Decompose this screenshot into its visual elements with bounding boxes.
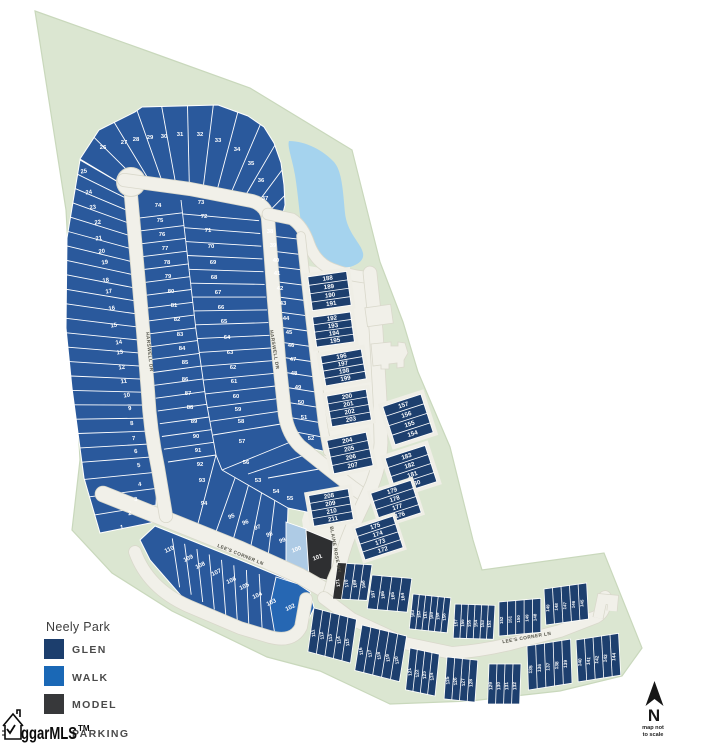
svg-text:49: 49 bbox=[295, 385, 302, 391]
svg-text:169: 169 bbox=[352, 579, 359, 588]
svg-text:117: 117 bbox=[367, 649, 374, 658]
svg-text:ggarMLS: ggarMLS bbox=[21, 723, 77, 743]
svg-text:29: 29 bbox=[147, 135, 154, 141]
svg-text:88: 88 bbox=[187, 405, 194, 411]
svg-text:72: 72 bbox=[201, 214, 208, 220]
svg-text:92: 92 bbox=[197, 462, 204, 468]
svg-text:157: 157 bbox=[453, 619, 458, 627]
svg-text:131: 131 bbox=[504, 682, 510, 691]
svg-text:195: 195 bbox=[330, 337, 342, 345]
svg-text:132: 132 bbox=[512, 682, 518, 691]
svg-text:165: 165 bbox=[390, 591, 397, 600]
svg-text:36: 36 bbox=[258, 178, 265, 184]
svg-text:28: 28 bbox=[133, 137, 140, 143]
svg-text:68: 68 bbox=[211, 275, 218, 281]
svg-text:76: 76 bbox=[159, 232, 166, 238]
svg-text:60: 60 bbox=[233, 394, 240, 400]
svg-text:54: 54 bbox=[273, 489, 280, 495]
svg-text:144: 144 bbox=[611, 652, 617, 661]
svg-text:30: 30 bbox=[161, 134, 168, 140]
svg-text:42: 42 bbox=[277, 286, 284, 292]
svg-text:91: 91 bbox=[195, 448, 202, 454]
svg-text:119: 119 bbox=[385, 653, 392, 662]
svg-text:153: 153 bbox=[480, 619, 485, 627]
svg-text:84: 84 bbox=[179, 346, 186, 352]
svg-text:129: 129 bbox=[488, 682, 494, 691]
svg-text:44: 44 bbox=[283, 316, 290, 322]
svg-text:155: 155 bbox=[466, 619, 471, 627]
svg-text:141: 141 bbox=[586, 657, 592, 666]
svg-text:89: 89 bbox=[191, 419, 198, 425]
svg-text:112: 112 bbox=[319, 631, 326, 640]
svg-text:135: 135 bbox=[528, 665, 534, 674]
svg-text:40: 40 bbox=[273, 258, 280, 264]
svg-text:74: 74 bbox=[155, 203, 162, 209]
svg-text:162: 162 bbox=[416, 610, 422, 618]
svg-text:87: 87 bbox=[185, 391, 192, 397]
svg-text:154: 154 bbox=[473, 619, 478, 627]
svg-text:TM: TM bbox=[78, 724, 90, 733]
svg-text:146: 146 bbox=[571, 600, 576, 608]
svg-text:46: 46 bbox=[288, 343, 295, 349]
svg-text:31: 31 bbox=[177, 132, 184, 138]
svg-text:63: 63 bbox=[227, 350, 234, 356]
svg-text:81: 81 bbox=[171, 303, 178, 309]
svg-text:66: 66 bbox=[218, 305, 225, 311]
svg-text:115: 115 bbox=[344, 638, 351, 647]
svg-text:WALK: WALK bbox=[72, 672, 109, 684]
svg-text:164: 164 bbox=[400, 592, 407, 601]
svg-text:75: 75 bbox=[157, 218, 164, 224]
svg-text:130: 130 bbox=[496, 682, 502, 691]
svg-text:53: 53 bbox=[255, 478, 262, 484]
svg-text:to scale: to scale bbox=[643, 732, 664, 738]
svg-text:26: 26 bbox=[100, 145, 107, 151]
svg-text:80: 80 bbox=[168, 289, 175, 295]
svg-text:86: 86 bbox=[182, 377, 189, 383]
svg-text:139: 139 bbox=[563, 660, 569, 669]
svg-text:34: 34 bbox=[234, 147, 241, 153]
svg-text:150: 150 bbox=[516, 615, 521, 623]
svg-text:189: 189 bbox=[323, 283, 335, 291]
svg-text:Neely Park: Neely Park bbox=[46, 620, 111, 634]
svg-text:65: 65 bbox=[221, 319, 228, 325]
svg-text:73: 73 bbox=[198, 200, 205, 206]
svg-text:116: 116 bbox=[358, 647, 365, 656]
svg-text:166: 166 bbox=[380, 590, 387, 599]
svg-text:152: 152 bbox=[499, 616, 504, 624]
svg-text:127: 127 bbox=[460, 678, 467, 687]
svg-text:149: 149 bbox=[524, 614, 529, 622]
svg-text:170: 170 bbox=[343, 579, 350, 588]
svg-text:163: 163 bbox=[410, 609, 416, 617]
svg-text:33: 33 bbox=[215, 138, 222, 144]
svg-text:151: 151 bbox=[508, 615, 513, 623]
svg-text:142: 142 bbox=[594, 655, 600, 664]
svg-text:67: 67 bbox=[215, 290, 222, 296]
svg-text:94: 94 bbox=[201, 501, 208, 507]
svg-text:70: 70 bbox=[208, 244, 215, 250]
svg-text:55: 55 bbox=[287, 496, 294, 502]
svg-text:39: 39 bbox=[270, 243, 277, 249]
svg-text:147: 147 bbox=[562, 601, 567, 609]
svg-text:50: 50 bbox=[298, 400, 305, 406]
svg-text:77: 77 bbox=[162, 246, 169, 252]
svg-text:149: 149 bbox=[545, 604, 550, 612]
svg-text:124: 124 bbox=[429, 672, 436, 681]
svg-text:137: 137 bbox=[545, 662, 551, 671]
svg-text:27: 27 bbox=[121, 140, 128, 146]
svg-text:N: N bbox=[648, 706, 660, 725]
svg-text:158: 158 bbox=[441, 612, 447, 620]
svg-text:171: 171 bbox=[335, 578, 342, 587]
svg-text:64: 64 bbox=[224, 335, 231, 341]
svg-text:71: 71 bbox=[205, 228, 212, 234]
svg-text:138: 138 bbox=[554, 661, 560, 670]
svg-text:82: 82 bbox=[174, 317, 181, 323]
svg-text:168: 168 bbox=[360, 580, 367, 589]
svg-text:125: 125 bbox=[445, 676, 452, 685]
svg-text:45: 45 bbox=[286, 330, 293, 336]
svg-text:191: 191 bbox=[326, 300, 338, 308]
svg-text:152: 152 bbox=[486, 620, 491, 628]
svg-text:78: 78 bbox=[164, 260, 171, 266]
svg-text:113: 113 bbox=[327, 633, 334, 642]
svg-text:52: 52 bbox=[308, 436, 315, 442]
svg-text:57: 57 bbox=[239, 439, 246, 445]
svg-text:123: 123 bbox=[421, 670, 428, 679]
svg-text:90: 90 bbox=[193, 434, 200, 440]
svg-text:190: 190 bbox=[325, 291, 337, 299]
svg-text:159: 159 bbox=[435, 612, 441, 620]
svg-text:map not: map not bbox=[642, 725, 664, 731]
svg-text:59: 59 bbox=[235, 407, 242, 413]
svg-text:79: 79 bbox=[165, 274, 172, 280]
svg-text:148: 148 bbox=[554, 603, 559, 611]
svg-text:122: 122 bbox=[414, 669, 421, 678]
svg-text:161: 161 bbox=[422, 610, 428, 618]
svg-text:128: 128 bbox=[468, 678, 475, 687]
svg-text:32: 32 bbox=[197, 132, 204, 138]
svg-text:111: 111 bbox=[310, 629, 317, 638]
svg-text:MODEL: MODEL bbox=[72, 699, 117, 711]
svg-text:56: 56 bbox=[243, 460, 250, 466]
svg-text:62: 62 bbox=[230, 365, 237, 371]
svg-text:58: 58 bbox=[238, 419, 245, 425]
svg-text:35: 35 bbox=[248, 161, 255, 167]
svg-text:156: 156 bbox=[460, 619, 465, 627]
svg-text:41: 41 bbox=[274, 271, 281, 277]
svg-text:136: 136 bbox=[537, 664, 543, 673]
svg-text:GLEN: GLEN bbox=[72, 644, 107, 656]
svg-text:114: 114 bbox=[336, 635, 343, 644]
svg-text:121: 121 bbox=[407, 667, 414, 676]
svg-text:188: 188 bbox=[322, 274, 334, 282]
svg-text:118: 118 bbox=[376, 651, 383, 660]
svg-text:126: 126 bbox=[453, 677, 460, 686]
svg-text:93: 93 bbox=[199, 478, 206, 484]
svg-text:48: 48 bbox=[291, 371, 298, 377]
svg-text:43: 43 bbox=[280, 301, 287, 307]
svg-text:38: 38 bbox=[267, 229, 274, 235]
svg-text:47: 47 bbox=[290, 357, 297, 363]
svg-text:140: 140 bbox=[577, 658, 583, 667]
svg-text:69: 69 bbox=[210, 260, 217, 266]
svg-text:51: 51 bbox=[301, 415, 308, 421]
svg-text:167: 167 bbox=[370, 589, 377, 598]
svg-text:143: 143 bbox=[603, 654, 609, 663]
svg-text:145: 145 bbox=[579, 599, 584, 607]
svg-text:61: 61 bbox=[231, 379, 238, 385]
svg-text:83: 83 bbox=[177, 332, 184, 338]
svg-text:160: 160 bbox=[429, 611, 435, 619]
svg-text:37: 37 bbox=[262, 196, 269, 202]
svg-text:148: 148 bbox=[533, 613, 538, 621]
svg-text:85: 85 bbox=[182, 360, 189, 366]
